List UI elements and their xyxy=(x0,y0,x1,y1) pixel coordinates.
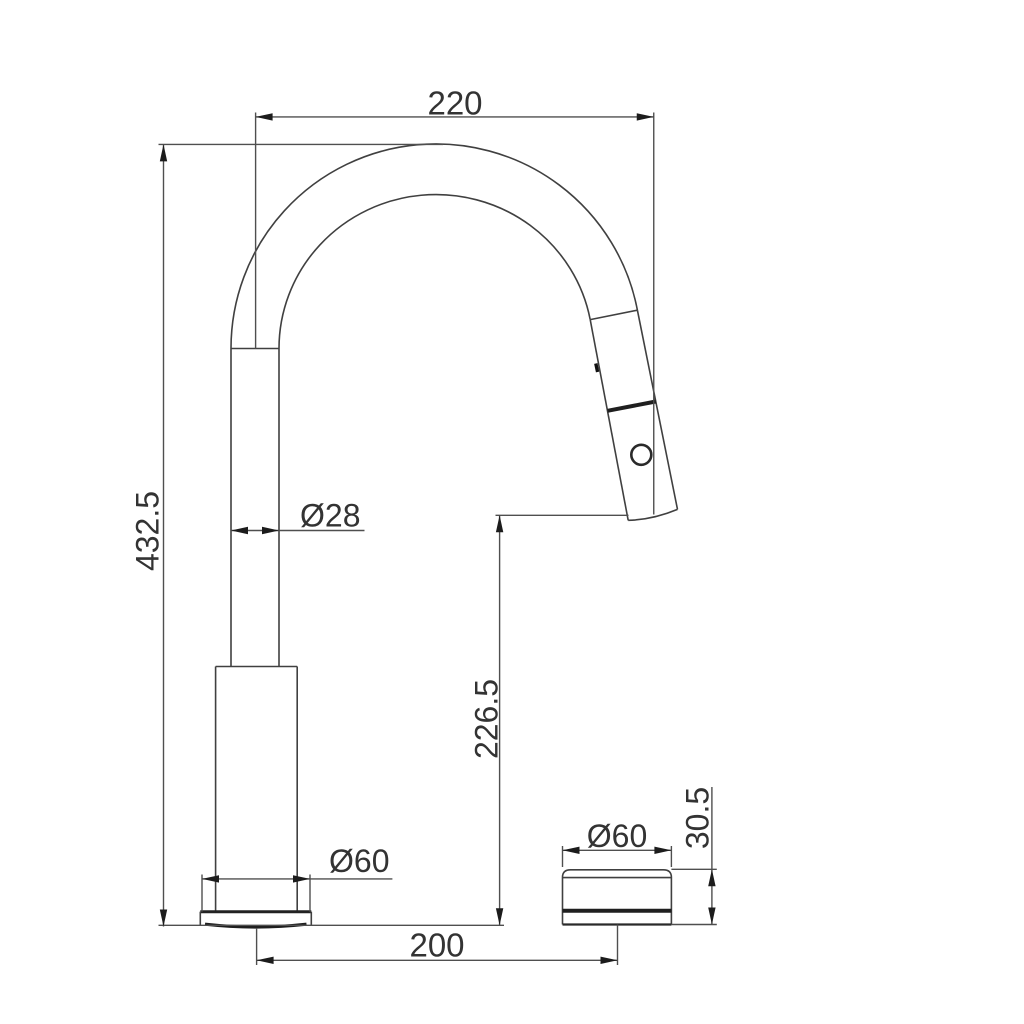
svg-text:432.5: 432.5 xyxy=(130,491,166,571)
svg-text:30.5: 30.5 xyxy=(680,787,716,849)
svg-text:226.5: 226.5 xyxy=(469,679,505,759)
svg-text:Ø60: Ø60 xyxy=(587,818,647,854)
svg-text:Ø60: Ø60 xyxy=(329,843,389,879)
svg-text:200: 200 xyxy=(409,927,464,964)
svg-text:220: 220 xyxy=(427,85,482,122)
svg-text:Ø28: Ø28 xyxy=(300,498,360,534)
